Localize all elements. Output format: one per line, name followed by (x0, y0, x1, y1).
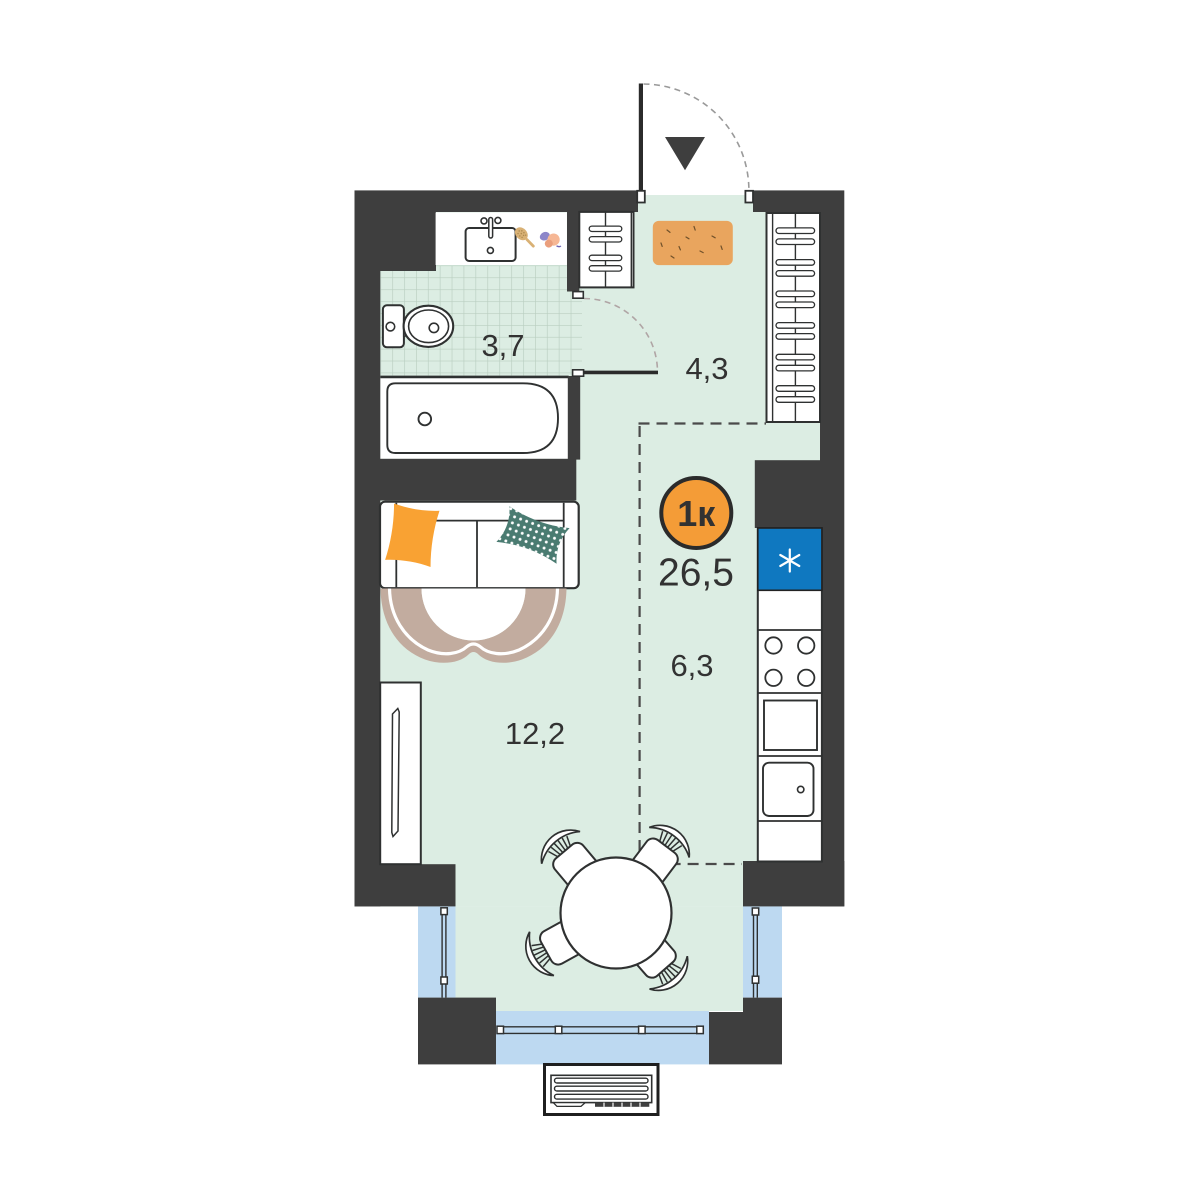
svg-text:12,2: 12,2 (505, 716, 565, 751)
svg-text:4,3: 4,3 (685, 351, 728, 386)
svg-text:1к: 1к (677, 493, 716, 534)
svg-text:26,5: 26,5 (658, 552, 734, 595)
svg-text:3,7: 3,7 (481, 328, 524, 363)
svg-text:6,3: 6,3 (670, 648, 713, 683)
